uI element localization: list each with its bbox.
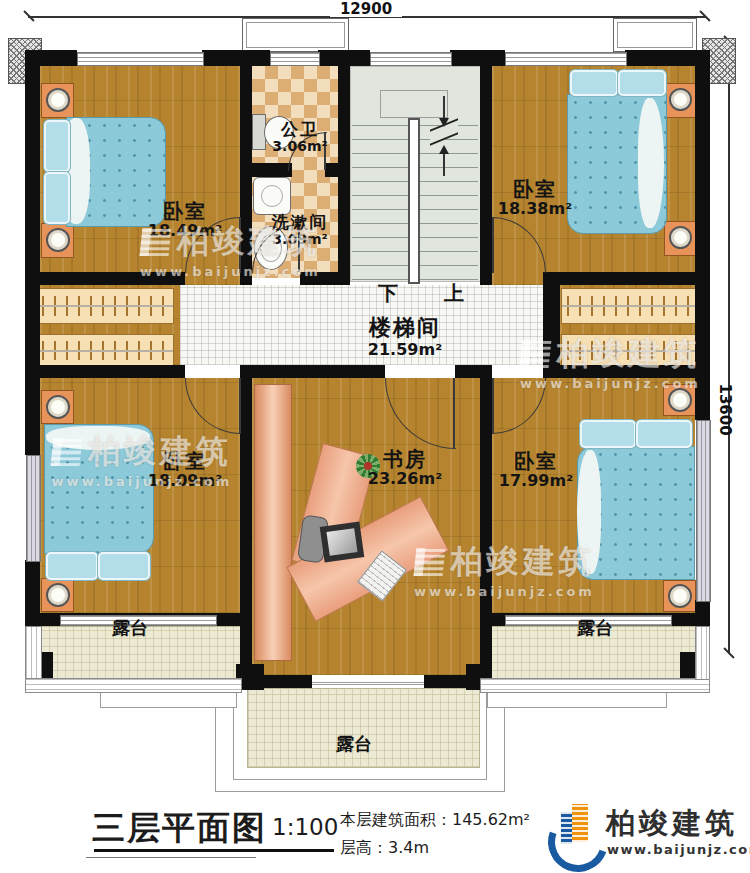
bed-sheet: [46, 426, 150, 450]
wardrobe: [561, 288, 697, 324]
pillow: [44, 120, 70, 172]
monitor-screen: [326, 528, 357, 556]
stair-down-label: 下: [374, 280, 402, 307]
wall: [240, 378, 252, 688]
room-area: 18.38m²: [498, 200, 572, 218]
wall: [40, 272, 185, 285]
window: [505, 52, 627, 66]
floor-plan-sheet: 12900 13600: [0, 0, 750, 873]
room-area: 23.26m²: [368, 470, 442, 488]
room-label-study: 书房 23.26m²: [345, 448, 465, 488]
right-dimension-line: [728, 42, 730, 654]
logo-name: 柏竣建筑: [606, 804, 738, 844]
lamp: [46, 583, 70, 607]
arrow-down-icon: [439, 118, 449, 127]
room-name: 卧室: [163, 200, 207, 222]
room-area: 18.09m²: [148, 472, 222, 490]
railing: [480, 678, 710, 693]
window: [77, 52, 204, 66]
study-side-cabinet: [254, 384, 292, 661]
terrace-left-label: 露台: [100, 616, 160, 640]
logo-building-orange: [572, 804, 588, 842]
window: [270, 52, 320, 66]
wall: [480, 378, 492, 688]
wall: [240, 365, 252, 378]
stair-direction-line-upper: [443, 96, 445, 120]
drawing-title: 三层平面图: [92, 806, 267, 851]
room-label-bedroom-top-right: 卧室 18.38m²: [470, 178, 600, 218]
room-name: 楼梯间: [369, 316, 441, 341]
railing: [25, 626, 42, 680]
wall: [545, 365, 695, 378]
wall: [545, 272, 695, 285]
bay-window-outline-center: [242, 18, 349, 52]
window: [26, 455, 41, 562]
wall: [252, 163, 292, 177]
room-area: 21.59m²: [368, 341, 442, 359]
floor-area-line: 本层建筑面积：145.62m²: [340, 810, 530, 831]
wardrobe: [561, 334, 697, 368]
window: [696, 420, 711, 602]
terrace-right-label: 露台: [565, 616, 625, 640]
door-leaf: [492, 217, 494, 273]
room-label-bathroom: 公卫 3.06m²: [268, 120, 332, 155]
pillow: [46, 552, 98, 580]
terrace-bottom-label: 露台: [324, 732, 384, 756]
room-label-washroom: 洗漱间 3.09m²: [258, 213, 342, 248]
room-label-stairwell: 楼梯间 21.59m²: [340, 316, 470, 359]
wall: [695, 600, 710, 626]
wall: [300, 272, 350, 285]
room-label-bedroom-bottom-left: 卧室 18.09m²: [120, 450, 250, 490]
room-name: 卧室: [513, 178, 557, 200]
pillow: [580, 420, 636, 448]
drawing-scale: 1:100: [272, 814, 338, 840]
wall: [202, 50, 270, 66]
room-name: 洗漱间: [272, 213, 329, 232]
wardrobe: [36, 288, 174, 324]
window: [370, 52, 452, 66]
wall: [543, 272, 560, 378]
wall: [695, 50, 710, 420]
pillow: [98, 552, 150, 580]
wall: [318, 50, 370, 66]
stair-center-rail: [408, 118, 420, 284]
wall: [455, 365, 492, 378]
pillow: [636, 420, 692, 448]
room-area: 18.49m²: [148, 222, 222, 240]
pillow: [570, 70, 618, 96]
lamp: [46, 395, 70, 419]
room-name: 公卫: [281, 120, 319, 139]
lamp: [668, 584, 692, 608]
room-name: 卧室: [514, 450, 558, 472]
wall: [480, 66, 492, 285]
room-area: 3.09m²: [272, 232, 327, 248]
wall: [25, 50, 40, 455]
wall: [25, 560, 40, 626]
wall: [240, 272, 252, 285]
floor-height-line: 层高：3.4m: [340, 838, 429, 859]
stair-landing-outline: [380, 90, 448, 118]
top-dimension-label: 12900: [330, 0, 402, 17]
room-name: 卧室: [163, 450, 207, 472]
door-leaf: [492, 378, 494, 434]
right-dimension-label: 13600: [717, 384, 734, 434]
pillow: [44, 172, 70, 224]
lamp: [669, 88, 692, 111]
bed-sheet: [638, 98, 664, 228]
wall: [240, 66, 252, 285]
wall: [40, 365, 185, 378]
title-underline-thin: [86, 857, 256, 858]
room-label-bedroom-top-left: 卧室 18.49m²: [120, 200, 250, 240]
room-label-bedroom-bottom-right: 卧室 17.99m²: [471, 450, 601, 490]
lamp: [46, 88, 70, 112]
stair-up-label: 上: [440, 280, 468, 307]
door-leaf: [453, 378, 455, 448]
lamp: [668, 388, 692, 412]
wall: [450, 50, 505, 66]
wall: [252, 365, 385, 378]
title-underline-thick: [94, 849, 334, 852]
railing: [695, 626, 710, 680]
wall: [480, 272, 492, 285]
room-name: 书房: [383, 448, 427, 470]
room-area: 17.99m²: [499, 472, 573, 490]
wardrobe: [36, 334, 174, 368]
floor-terrace-bottom: [247, 688, 480, 768]
pillow: [618, 70, 666, 96]
logo-url: www.baijunjz.com: [607, 842, 750, 857]
room-area: 3.06m²: [272, 139, 327, 155]
washer-door: [261, 185, 283, 207]
stair-direction-line-lower: [443, 152, 445, 176]
logo-building-blue: [561, 812, 572, 844]
railing: [25, 678, 242, 693]
arrow-up-icon: [439, 145, 449, 154]
bay-window-outline-right: [613, 18, 697, 52]
lamp: [669, 226, 692, 249]
door-leaf: [239, 378, 241, 434]
lamp: [46, 228, 70, 252]
